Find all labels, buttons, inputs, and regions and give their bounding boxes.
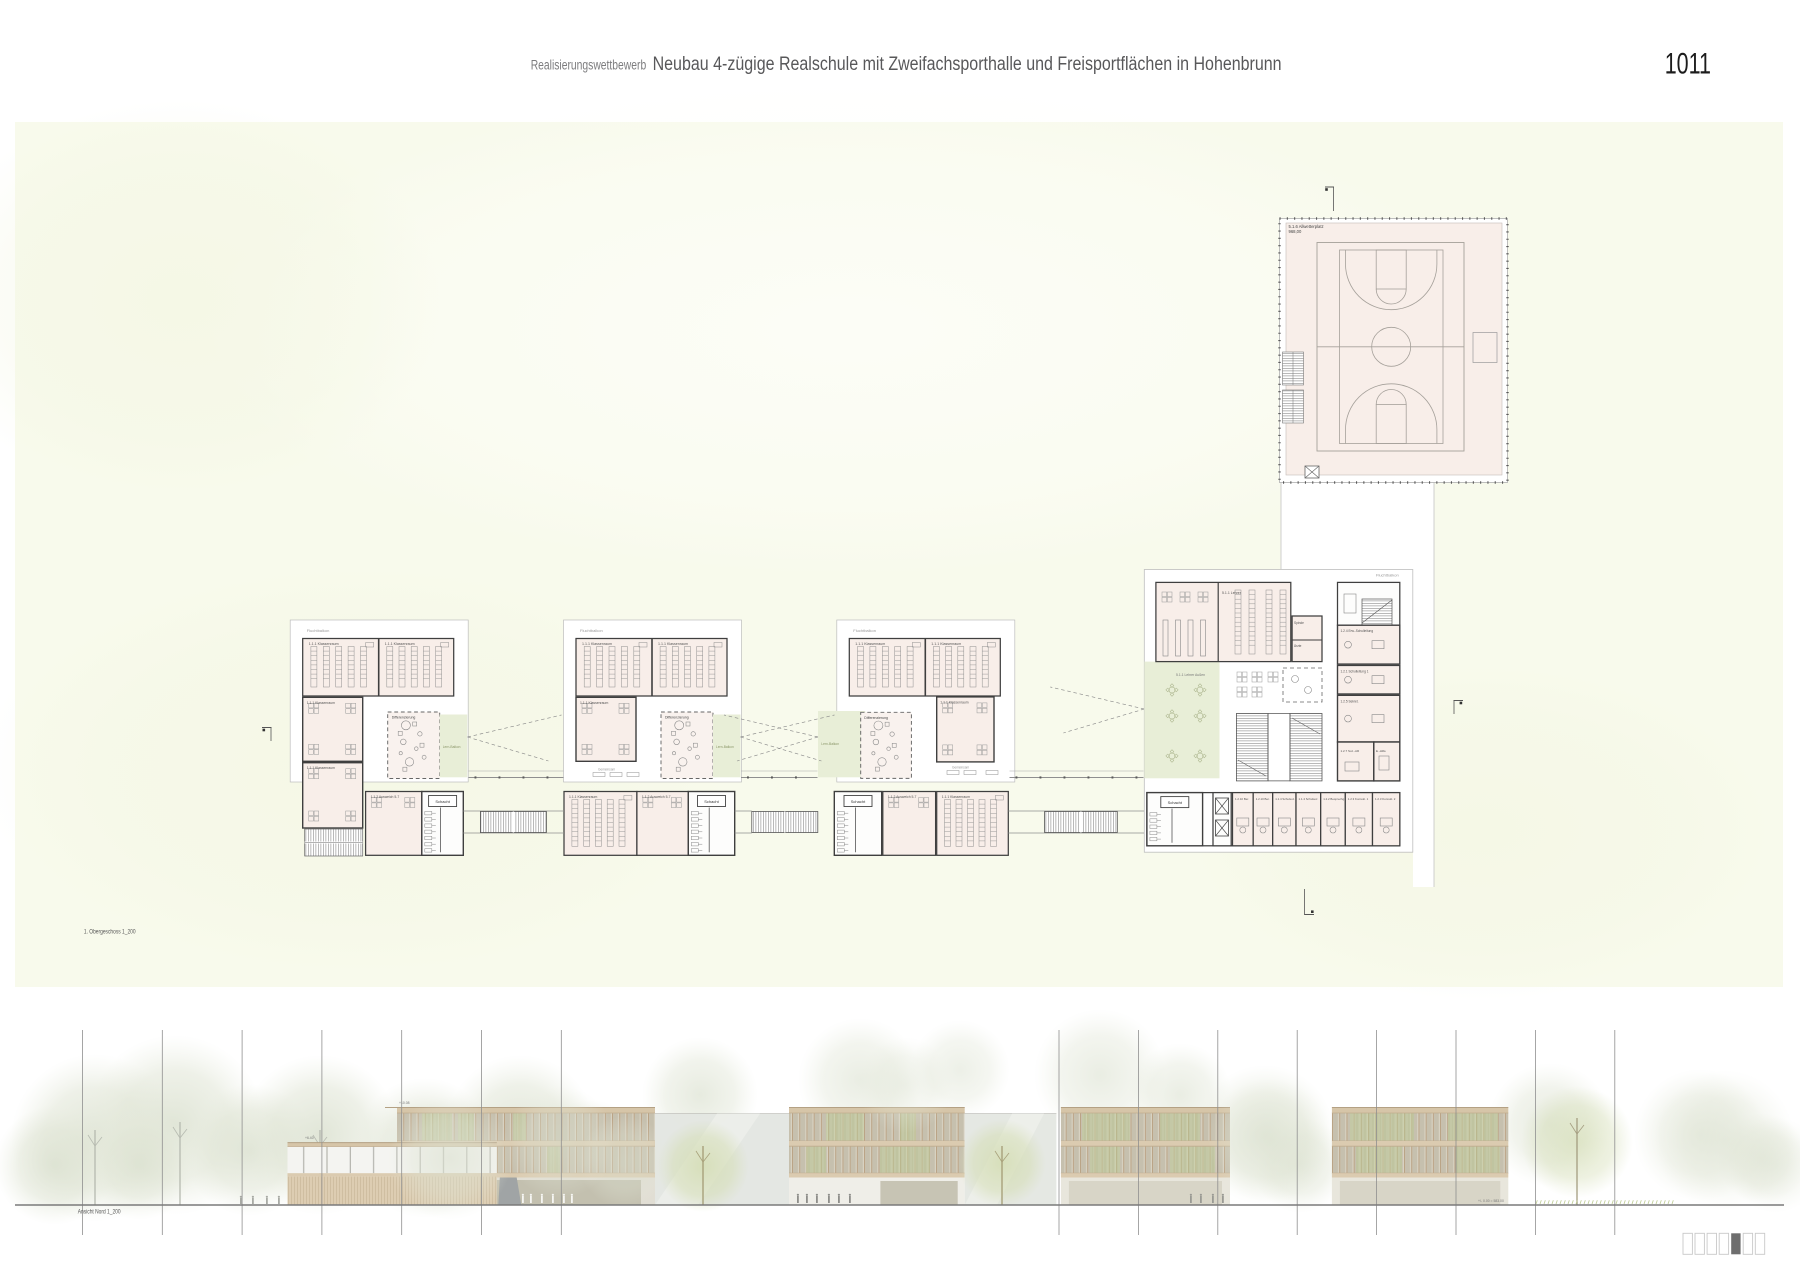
svg-text:1.2.10 Ber.: 1.2.10 Ber. <box>1256 797 1270 801</box>
svg-text:Spinde: Spinde <box>1294 621 1304 625</box>
svg-text:1.1.2 Ausweich 5-7: 1.1.2 Ausweich 5-7 <box>642 795 671 799</box>
svg-text:1.2.7 Soz.-AR: 1.2.7 Soz.-AR <box>1341 749 1361 753</box>
svg-text:+6.40: +6.40 <box>305 1136 314 1140</box>
svg-text:1.1.1 Klassenraum: 1.1.1 Klassenraum <box>931 642 961 646</box>
svg-text:1.1.1 Klassenraum: 1.1.1 Klassenraum <box>385 642 415 646</box>
svg-text:1. Obergeschoss 1_200: 1. Obergeschoss 1_200 <box>84 929 136 936</box>
svg-text:Gemeinsam: Gemeinsam <box>598 768 616 772</box>
svg-text:1.1.4 Schulsoz.: 1.1.4 Schulsoz. <box>1275 797 1295 801</box>
svg-text:1.1.1 Klassenraum: 1.1.1 Klassenraum <box>942 795 970 799</box>
svg-text:1.2.3 Konrekt. 2: 1.2.3 Konrekt. 2 <box>1375 797 1396 801</box>
svg-text:1.1.1 Klassenraum: 1.1.1 Klassenraum <box>658 642 688 646</box>
svg-text:1.1.1 Klassenraum: 1.1.1 Klassenraum <box>855 642 885 646</box>
svg-text:Differenzierung: Differenzierung <box>392 716 416 720</box>
svg-text:Lern-Balkon: Lern-Balkon <box>443 745 461 749</box>
svg-text:Ärzte: Ärzte <box>1294 644 1302 648</box>
svg-text:Schacht: Schacht <box>435 799 450 804</box>
svg-text:1.1.1 Klassenraum: 1.1.1 Klassenraum <box>309 642 339 646</box>
svg-text:1.1.4 Schulsoz.: 1.1.4 Schulsoz. <box>1299 797 1319 801</box>
svg-text:1.2.4 Erw.-Schulleitung: 1.2.4 Erw.-Schulleitung <box>1341 629 1374 633</box>
svg-text:1.1.1 Klassenraum: 1.1.1 Klassenraum <box>940 701 968 705</box>
svg-text:Schacht: Schacht <box>704 799 719 804</box>
svg-text:1.1.2 Ausweich 5-7: 1.1.2 Ausweich 5-7 <box>888 795 917 799</box>
svg-text:Gemeinsam: Gemeinsam <box>952 766 970 770</box>
svg-text:5.1.1 Lehrer Außen: 5.1.1 Lehrer Außen <box>1176 673 1205 677</box>
svg-text:1.1.1 Klassenraum: 1.1.1 Klassenraum <box>307 766 335 770</box>
svg-text:5.1.1 Lehrer: 5.1.1 Lehrer <box>1222 591 1242 595</box>
svg-text:1.2.1 Schulleitung 1: 1.2.1 Schulleitung 1 <box>1341 669 1369 673</box>
svg-text:Fluchtbalkon: Fluchtbalkon <box>853 628 876 633</box>
svg-text:E.-Hilfe: E.-Hilfe <box>1376 749 1386 753</box>
svg-text:+10.08: +10.08 <box>399 1101 410 1105</box>
svg-text:Lern-Balkon: Lern-Balkon <box>821 742 839 746</box>
svg-text:1.2.5 Sekret.: 1.2.5 Sekret. <box>1341 699 1359 703</box>
svg-text:1.2.10 Ber.: 1.2.10 Ber. <box>1235 797 1249 801</box>
svg-text:1.2.3 Konrekt. 1: 1.2.3 Konrekt. 1 <box>1348 797 1369 801</box>
svg-text:968,00: 968,00 <box>1289 229 1302 234</box>
svg-text:+/- 0.00 = 583.00: +/- 0.00 = 583.00 <box>1478 1199 1504 1203</box>
svg-text:Realisierungswettbewerb: Realisierungswettbewerb <box>531 58 647 73</box>
svg-text:Lern-Balkon: Lern-Balkon <box>716 745 734 749</box>
svg-text:Fluchtbalkon: Fluchtbalkon <box>580 628 603 633</box>
svg-text:Differenzierung: Differenzierung <box>864 716 888 720</box>
svg-text:Neubau 4-zügige Realschule mit: Neubau 4-zügige Realschule mit Zweifachs… <box>653 54 1282 75</box>
svg-text:Differenzierung: Differenzierung <box>665 716 689 720</box>
svg-text:1.1.1 Klassenraum: 1.1.1 Klassenraum <box>569 795 597 799</box>
svg-text:1.1.1 Klassenraum: 1.1.1 Klassenraum <box>582 642 612 646</box>
svg-text:1.1.1 Klassenraum: 1.1.1 Klassenraum <box>307 701 335 705</box>
svg-text:1011: 1011 <box>1665 47 1711 80</box>
svg-text:Schacht: Schacht <box>851 799 866 804</box>
svg-text:1.1.2 Ausweich 5-7: 1.1.2 Ausweich 5-7 <box>371 795 400 799</box>
svg-text:Fluchtbalkon: Fluchtbalkon <box>307 628 330 633</box>
svg-text:Ansicht Nord 1_200: Ansicht Nord 1_200 <box>78 1209 121 1216</box>
svg-text:Schacht: Schacht <box>1168 800 1183 805</box>
svg-text:1.2.2 Besprechg.: 1.2.2 Besprechg. <box>1323 797 1345 801</box>
svg-text:Fluchtbalkon: Fluchtbalkon <box>1376 573 1399 578</box>
svg-text:1.1.1 Klassenraum: 1.1.1 Klassenraum <box>580 701 608 705</box>
